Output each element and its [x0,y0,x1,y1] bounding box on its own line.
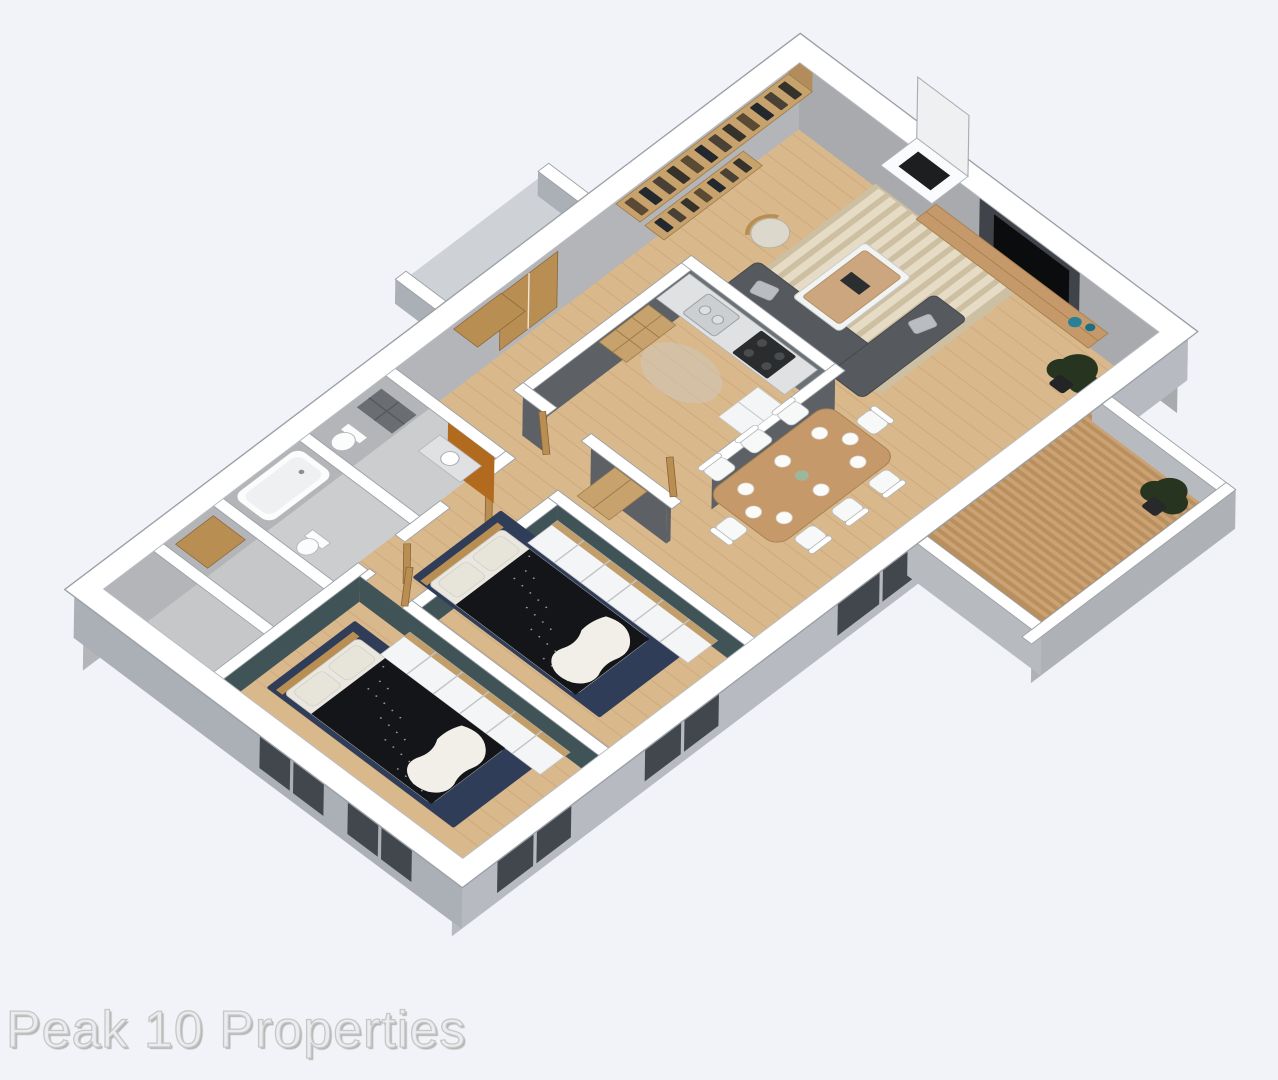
watermark: Peak 10 Properties [6,1000,466,1060]
floor-plan-render [0,0,1278,1080]
floor-plan-screenshot: Peak 10 Properties [0,0,1278,1080]
